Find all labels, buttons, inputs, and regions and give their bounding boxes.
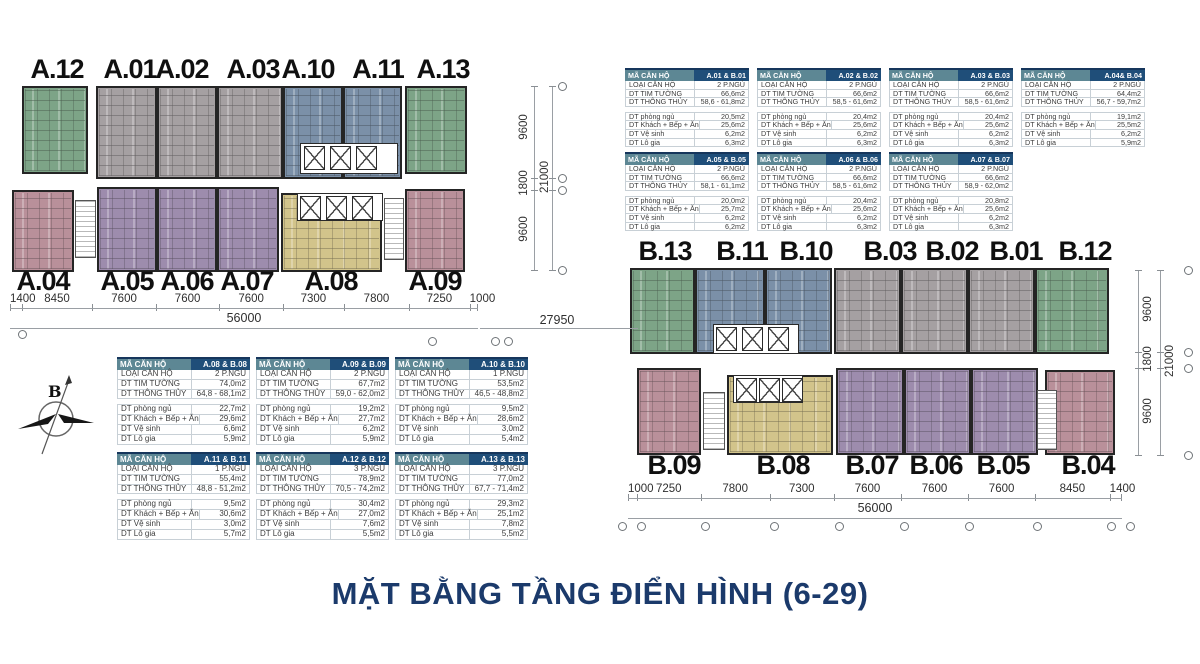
row-label: DT TIM TƯỜNG [626, 90, 695, 98]
table-row: DT THÔNG THỦY58,9 - 62,0m2 [889, 182, 1013, 191]
row-label: LOẠI CĂN HỘ [1022, 81, 1091, 89]
row-label: DT Lô gia [890, 223, 959, 231]
unit-label-b-12: B.12 [1039, 236, 1131, 267]
row-value: 6,3m2 [827, 223, 880, 231]
unit-spec-table-a-03: MÃ CĂN HỘA.03 & B.03LOẠI CĂN HỘ2 P.NGỦDT… [889, 68, 1013, 147]
unit-a-12 [22, 86, 88, 174]
unit-a-03 [217, 86, 283, 179]
row-value: 25,6m2 [700, 121, 748, 129]
elevator-icon [356, 146, 377, 170]
row-value: 6,2m2 [695, 223, 748, 231]
dim-segment: 7250 [637, 482, 701, 496]
unit-a-13 [405, 86, 467, 174]
grid-bubble [770, 522, 779, 531]
row-label: DT THÔNG THỦY [1022, 98, 1091, 106]
dim-label-vertical: 9600 [518, 97, 530, 157]
table-row: DT Lô gia5,7m2 [117, 530, 250, 540]
row-label: DT TIM TƯỜNG [257, 380, 331, 389]
row-value: 67,7m2 [331, 380, 388, 389]
unit-spec-table-a-05: MÃ CĂN HỘA.05 & B.05LOẠI CĂN HỘ2 P.NGỦDT… [625, 152, 749, 231]
row-label: DT Vệ sinh [890, 214, 959, 222]
row-value: 28,6m2 [478, 415, 527, 424]
table-row: DT Lô gia6,2m2 [625, 223, 749, 232]
row-label: DT Lô gia [890, 139, 959, 147]
dim-line [10, 308, 478, 309]
row-value: 20,0m2 [695, 197, 748, 205]
row-label: DT Khách + Bếp + Ăn [626, 121, 700, 129]
row-value: 25,5m2 [1096, 121, 1144, 129]
stair-zone [703, 392, 725, 450]
table-row: DT Lô gia5,5m2 [395, 530, 528, 540]
row-label: DT phòng ngủ [1022, 113, 1091, 121]
row-value: 3 P.NGỦ [470, 465, 527, 474]
row-label: LOẠI CĂN HỘ [396, 370, 470, 379]
table-row: DT THÔNG THỦY67,7 - 71,4m2 [395, 485, 528, 495]
row-value: 6,2m2 [959, 214, 1012, 222]
dim-segment: 1400 [10, 292, 22, 306]
row-value: 25,6m2 [832, 205, 880, 213]
grid-bubble [558, 266, 567, 275]
unit-a-07 [217, 187, 279, 272]
row-value: 2 P.NGỦ [827, 81, 880, 89]
row-value: 3,0m2 [470, 425, 527, 434]
row-label: DT TIM TƯỜNG [118, 475, 192, 484]
row-label: DT phòng ngủ [758, 197, 827, 205]
unit-b-05 [971, 368, 1038, 455]
row-label: DT TIM TƯỜNG [1022, 90, 1091, 98]
row-label: DT THÔNG THỦY [626, 98, 695, 106]
row-value: 58,5 - 61,6m2 [827, 182, 880, 190]
dim-gap-label: 27950 [527, 313, 587, 327]
unit-spec-table-a-11: MÃ CĂN HỘA.11 & B.11LOẠI CĂN HỘ1 P.NGỦDT… [117, 452, 250, 540]
table-row: DT THÔNG THỦY48,8 - 51,2m2 [117, 485, 250, 495]
row-value: 78,9m2 [331, 475, 388, 484]
grid-bubble [835, 522, 844, 531]
table-row: DT Lô gia6,3m2 [889, 223, 1013, 232]
sheet-title: MẶT BẰNG TẦNG ĐIỂN HÌNH (6-29) [20, 576, 1180, 612]
dim-segment: 7300 [770, 482, 834, 496]
row-label: LOẠI CĂN HỘ [890, 165, 959, 173]
elevator-icon [782, 378, 803, 402]
elevator-icon [330, 146, 351, 170]
table-row: DT THÔNG THỦY58,5 - 61,6m2 [757, 98, 881, 107]
dim-line [628, 518, 1122, 519]
row-label: DT Vệ sinh [626, 130, 695, 138]
grid-bubble [1184, 451, 1193, 460]
row-value: 66,6m2 [695, 90, 748, 98]
row-label: DT Lô gia [396, 530, 470, 539]
row-label: DT phòng ngủ [396, 405, 470, 414]
row-label: LOẠI CĂN HỘ [396, 465, 470, 474]
dim-segment: 8450 [1035, 482, 1110, 496]
dim-line [480, 328, 638, 329]
row-label: DT THÔNG THỦY [118, 390, 192, 399]
unit-spec-table-a-01: MÃ CĂN HỘA.01 & B.01LOẠI CĂN HỘ2 P.NGỦDT… [625, 68, 749, 147]
row-label: DT Khách + Bếp + Ăn [626, 205, 700, 213]
row-label: DT phòng ngủ [118, 500, 192, 509]
dim-line [10, 328, 478, 329]
row-value: 20,8m2 [959, 197, 1012, 205]
elevator-icon [304, 146, 325, 170]
row-label: DT Vệ sinh [890, 130, 959, 138]
unit-b-02 [901, 268, 968, 354]
row-value: 27,7m2 [339, 415, 388, 424]
row-value: 20,4m2 [827, 113, 880, 121]
row-value: 46,5 - 48,8m2 [470, 390, 527, 399]
table-row: DT Lô gia5,9m2 [117, 435, 250, 445]
unit-a-04 [12, 190, 74, 272]
row-label: DT Khách + Bếp + Ăn [118, 510, 200, 519]
row-value: 55,4m2 [192, 475, 249, 484]
unit-spec-table-a-06: MÃ CĂN HỘA.06 & B.06LOẠI CĂN HỘ2 P.NGỦDT… [757, 152, 881, 231]
row-value: 64,4m2 [1091, 90, 1144, 98]
row-value: 6,3m2 [827, 139, 880, 147]
row-value: 20,5m2 [695, 113, 748, 121]
row-value: 2 P.NGỦ [1091, 81, 1144, 89]
row-value: 58,9 - 62,0m2 [959, 182, 1012, 190]
row-label: LOẠI CĂN HỘ [890, 81, 959, 89]
dim-tick [531, 270, 538, 271]
unit-b-01 [968, 268, 1035, 354]
row-label: LOẠI CĂN HỘ [257, 370, 331, 379]
row-value: 6,2m2 [695, 130, 748, 138]
row-value: 19,1m2 [1091, 113, 1144, 121]
unit-spec-table-a-10: MÃ CĂN HỘA.10 & B.10LOẠI CĂN HỘ1 P.NGỦDT… [395, 357, 528, 445]
grid-bubble [1184, 348, 1193, 357]
stair-zone [75, 200, 96, 258]
unit-spec-table-a-09: MÃ CĂN HỘA.09 & B.09LOẠI CĂN HỘ2 P.NGỦDT… [256, 357, 389, 445]
grid-bubble [1126, 522, 1135, 531]
grid-bubble [900, 522, 909, 531]
grid-bubble [558, 174, 567, 183]
grid-bubble [504, 337, 513, 346]
row-label: DT Lô gia [626, 139, 695, 147]
grid-bubble [558, 186, 567, 195]
row-value: 66,6m2 [827, 90, 880, 98]
dim-tick [531, 178, 538, 179]
row-label: DT Khách + Bếp + Ăn [257, 415, 339, 424]
row-value: 77,0m2 [470, 475, 527, 484]
row-value: 66,6m2 [959, 174, 1012, 182]
row-value: 9,5m2 [470, 405, 527, 414]
dim-segment: 1000 [470, 292, 478, 306]
grid-bubble [637, 522, 646, 531]
row-value: 5,4m2 [470, 435, 527, 444]
dim-segment: 8450 [22, 292, 93, 306]
table-row: DT Lô gia6,3m2 [757, 139, 881, 148]
dim-segment: 7600 [92, 292, 156, 306]
row-label: DT TIM TƯỜNG [396, 475, 470, 484]
row-value: 9,5m2 [192, 500, 249, 509]
floor-plan-sheet: B MẶT BẰNG TẦNG ĐIỂN HÌNH (6-29) A.12A.0… [0, 0, 1200, 664]
row-label: LOẠI CĂN HỘ [118, 370, 192, 379]
row-value: 20,4m2 [959, 113, 1012, 121]
grid-bubble [618, 522, 627, 531]
grid-bubble [1107, 522, 1116, 531]
row-value: 2 P.NGỦ [959, 165, 1012, 173]
row-value: 3,0m2 [192, 520, 249, 529]
row-label: DT Vệ sinh [1022, 130, 1091, 138]
dim-tick [1157, 368, 1164, 369]
row-label: LOẠI CĂN HỘ [758, 81, 827, 89]
elevator-icon [742, 327, 763, 351]
row-label: DT Lô gia [758, 223, 827, 231]
dim-line-vertical [1138, 270, 1139, 455]
dim-segment: 7300 [283, 292, 344, 306]
row-label: LOẠI CĂN HỘ [626, 81, 695, 89]
row-value: 66,6m2 [695, 174, 748, 182]
table-row: DT Lô gia5,9m2 [1021, 139, 1145, 148]
row-value: 6,2m2 [331, 425, 388, 434]
row-value: 6,3m2 [695, 139, 748, 147]
row-label: DT THÔNG THỦY [758, 98, 827, 106]
row-label: DT TIM TƯỜNG [396, 380, 470, 389]
table-row: DT THÔNG THỦY58,6 - 61,8m2 [625, 98, 749, 107]
row-value: 30,4m2 [331, 500, 388, 509]
row-value: 27,0m2 [339, 510, 388, 519]
dim-label-vertical: 9600 [518, 199, 530, 259]
row-label: DT Khách + Bếp + Ăn [257, 510, 339, 519]
row-value: 58,1 - 61,1m2 [695, 182, 748, 190]
row-value: 70,5 - 74,2m2 [331, 485, 388, 494]
dim-tick [1135, 352, 1142, 353]
grid-bubble [965, 522, 974, 531]
dim-tick [549, 86, 556, 87]
dim-tick [531, 86, 538, 87]
unit-b-12 [1035, 268, 1109, 354]
grid-bubble [1184, 364, 1193, 373]
unit-spec-table-a-04&: MÃ CĂN HỘA.04& B.04LOẠI CĂN HỘ2 P.NGỦDT … [1021, 68, 1145, 147]
row-label: DT TIM TƯỜNG [890, 90, 959, 98]
row-label: DT TIM TƯỜNG [758, 174, 827, 182]
elevator-icon [326, 196, 347, 220]
dim-segment: 7600 [968, 482, 1035, 496]
row-value: 5,7m2 [192, 530, 249, 539]
table-row: DT Lô gia6,3m2 [757, 223, 881, 232]
row-label: DT THÔNG THỦY [396, 390, 470, 399]
dim-total-vertical: 21000 [1164, 331, 1176, 391]
row-value: 66,6m2 [827, 174, 880, 182]
row-label: DT Lô gia [118, 530, 192, 539]
table-row: DT Lô gia5,5m2 [256, 530, 389, 540]
stair-zone [384, 198, 404, 260]
row-label: DT phòng ngủ [626, 197, 695, 205]
grid-bubble [491, 337, 500, 346]
row-value: 5,9m2 [192, 435, 249, 444]
row-value: 6,2m2 [695, 214, 748, 222]
row-value: 6,2m2 [827, 214, 880, 222]
row-value: 59,0 - 62,0m2 [331, 390, 388, 399]
row-value: 56,7 - 59,7m2 [1091, 98, 1144, 106]
elevator-icon [768, 327, 789, 351]
dim-segment: 7600 [219, 292, 283, 306]
table-row: DT THÔNG THỦY70,5 - 74,2m2 [256, 485, 389, 495]
row-label: DT Lô gia [118, 435, 192, 444]
dim-segment: 7600 [156, 292, 220, 306]
dim-tick [1135, 455, 1142, 456]
row-label: DT phòng ngủ [758, 113, 827, 121]
elevator-icon [736, 378, 757, 402]
row-label: DT Vệ sinh [626, 214, 695, 222]
row-label: DT Vệ sinh [118, 425, 192, 434]
row-value: 2 P.NGỦ [695, 81, 748, 89]
grid-bubble [1184, 266, 1193, 275]
row-value: 6,3m2 [959, 139, 1012, 147]
unit-spec-table-a-13: MÃ CĂN HỘA.13 & B.13LOẠI CĂN HỘ3 P.NGỦDT… [395, 452, 528, 540]
row-label: DT Khách + Bếp + Ăn [118, 415, 200, 424]
unit-spec-table-a-12: MÃ CĂN HỘA.12 & B.12LOẠI CĂN HỘ3 P.NGỦDT… [256, 452, 389, 540]
dim-row: 100072507800730076007600760084501400 [628, 482, 1122, 496]
row-label: DT Khách + Bếp + Ăn [758, 205, 832, 213]
unit-b-13 [630, 268, 695, 354]
row-value: 6,2m2 [827, 130, 880, 138]
row-value: 5,9m2 [331, 435, 388, 444]
unit-spec-table-a-08: MÃ CĂN HỘA.08 & B.08LOẠI CĂN HỘ2 P.NGỦDT… [117, 357, 250, 445]
row-label: DT phòng ngủ [257, 500, 331, 509]
row-label: DT Khách + Bếp + Ăn [890, 205, 964, 213]
table-row: DT Lô gia6,3m2 [889, 139, 1013, 148]
row-value: 5,5m2 [331, 530, 388, 539]
row-value: 7,6m2 [331, 520, 388, 529]
unit-label-b-08: B.08 [737, 450, 829, 481]
row-value: 74,0m2 [192, 380, 249, 389]
row-label: DT phòng ngủ [118, 405, 192, 414]
grid-bubble [18, 330, 27, 339]
grid-bubble [1033, 522, 1042, 531]
unit-b-09 [637, 368, 701, 455]
table-row: DT THÔNG THỦY58,1 - 61,1m2 [625, 182, 749, 191]
row-label: LOẠI CĂN HỘ [626, 165, 695, 173]
row-label: DT phòng ngủ [257, 405, 331, 414]
row-value: 22,7m2 [192, 405, 249, 414]
row-label: DT Khách + Bếp + Ăn [396, 415, 478, 424]
row-value: 5,5m2 [470, 530, 527, 539]
row-value: 25,1m2 [478, 510, 527, 519]
row-value: 64,8 - 68,1m2 [192, 390, 249, 399]
dim-segment: 7250 [409, 292, 470, 306]
row-label: DT THÔNG THỦY [118, 485, 192, 494]
compass-north-icon: B [12, 372, 98, 458]
dim-segment: 7600 [834, 482, 901, 496]
dim-tick [549, 270, 556, 271]
row-label: DT Lô gia [257, 435, 331, 444]
row-label: DT THÔNG THỦY [396, 485, 470, 494]
row-value: 29,6m2 [200, 415, 249, 424]
row-value: 67,7 - 71,4m2 [470, 485, 527, 494]
table-row: DT THÔNG THỦY56,7 - 59,7m2 [1021, 98, 1145, 107]
row-value: 1 P.NGỦ [470, 370, 527, 379]
dim-tick [1135, 270, 1142, 271]
row-label: DT Lô gia [626, 223, 695, 231]
row-label: DT Vệ sinh [257, 425, 331, 434]
dim-row: 140084507600760076007300780072501000 [10, 292, 478, 306]
elevator-icon [300, 196, 321, 220]
unit-a-06 [157, 187, 217, 272]
dim-tick [1135, 368, 1142, 369]
row-label: DT Khách + Bếp + Ăn [396, 510, 478, 519]
unit-label-b-10: B.10 [760, 236, 852, 267]
row-value: 58,6 - 61,8m2 [695, 98, 748, 106]
row-label: DT TIM TƯỜNG [626, 174, 695, 182]
row-value: 6,2m2 [959, 130, 1012, 138]
row-label: DT phòng ngủ [890, 197, 959, 205]
stair-zone [1037, 390, 1057, 450]
row-value: 2 P.NGỦ [331, 370, 388, 379]
row-value: 2 P.NGỦ [695, 165, 748, 173]
row-value: 58,5 - 61,6m2 [827, 98, 880, 106]
row-label: DT THÔNG THỦY [626, 182, 695, 190]
table-row: DT Lô gia6,3m2 [625, 139, 749, 148]
dim-segment: 7600 [901, 482, 968, 496]
unit-label-b-04: B.04 [1042, 450, 1134, 481]
elevator-icon [759, 378, 780, 402]
row-value: 66,6m2 [959, 90, 1012, 98]
row-label: LOẠI CĂN HỘ [118, 465, 192, 474]
table-row: DT Lô gia5,9m2 [256, 435, 389, 445]
row-label: DT Khách + Bếp + Ăn [1022, 121, 1096, 129]
unit-spec-table-a-07: MÃ CĂN HỘA.07 & B.07LOẠI CĂN HỘ2 P.NGỦDT… [889, 152, 1013, 231]
row-value: 25,6m2 [964, 205, 1012, 213]
elevator-icon [716, 327, 737, 351]
row-value: 30,6m2 [200, 510, 249, 519]
unit-a-09 [405, 189, 465, 272]
row-label: DT THÔNG THỦY [257, 390, 331, 399]
row-value: 25,6m2 [832, 121, 880, 129]
north-label: B [48, 382, 62, 401]
row-value: 53,5m2 [470, 380, 527, 389]
row-value: 2 P.NGỦ [192, 370, 249, 379]
row-label: DT Lô gia [758, 139, 827, 147]
dim-tick [1157, 270, 1164, 271]
row-label: DT THÔNG THỦY [257, 485, 331, 494]
row-value: 1 P.NGỦ [192, 465, 249, 474]
row-label: DT THÔNG THỦY [890, 98, 959, 106]
row-label: DT Vệ sinh [396, 425, 470, 434]
table-row: DT THÔNG THỦY59,0 - 62,0m2 [256, 390, 389, 400]
row-label: LOẠI CĂN HỘ [257, 465, 331, 474]
row-label: DT Vệ sinh [758, 214, 827, 222]
table-row: DT THÔNG THỦY64,8 - 68,1m2 [117, 390, 250, 400]
dim-segment: 1000 [628, 482, 637, 496]
dim-segment: 7800 [701, 482, 770, 496]
dim-label-vertical: 1800 [1142, 329, 1154, 389]
row-label: DT Vệ sinh [396, 520, 470, 529]
row-label: DT phòng ngủ [890, 113, 959, 121]
row-value: 29,3m2 [470, 500, 527, 509]
unit-spec-table-a-02: MÃ CĂN HỘA.02 & B.02LOẠI CĂN HỘ2 P.NGỦDT… [757, 68, 881, 147]
dim-total-vertical: 21000 [539, 147, 551, 207]
grid-bubble [428, 337, 437, 346]
row-label: DT TIM TƯỜNG [118, 380, 192, 389]
row-label: DT Lô gia [396, 435, 470, 444]
row-label: DT Lô gia [257, 530, 331, 539]
unit-label-b-05: B.05 [957, 450, 1049, 481]
row-label: DT TIM TƯỜNG [890, 174, 959, 182]
row-label: DT Vệ sinh [758, 130, 827, 138]
dim-label-vertical: 9600 [1142, 381, 1154, 441]
dim-tick [531, 190, 538, 191]
row-value: 58,5 - 61,6m2 [959, 98, 1012, 106]
row-value: 25,7m2 [700, 205, 748, 213]
row-value: 2 P.NGỦ [827, 165, 880, 173]
dim-total: 56000 [10, 311, 478, 325]
row-label: DT TIM TƯỜNG [257, 475, 331, 484]
dim-segment: 1400 [1110, 482, 1122, 496]
row-value: 2 P.NGỦ [959, 81, 1012, 89]
row-value: 19,2m2 [331, 405, 388, 414]
row-label: DT phòng ngủ [396, 500, 470, 509]
row-label: DT THÔNG THỦY [890, 182, 959, 190]
